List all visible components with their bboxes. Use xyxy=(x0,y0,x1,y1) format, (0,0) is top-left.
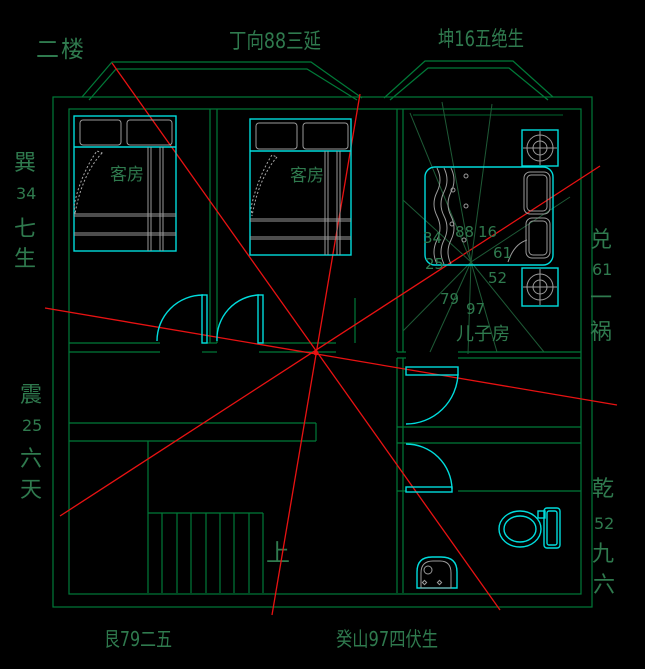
wash-basin xyxy=(417,557,457,588)
grid-number: 34 xyxy=(423,229,442,247)
compass-char: 震 xyxy=(20,383,42,408)
blanket-fold xyxy=(74,151,102,214)
grid-number: 79 xyxy=(440,290,459,308)
grid-number: 52 xyxy=(488,269,507,287)
bedside-table xyxy=(522,130,558,166)
blanket-wave xyxy=(441,168,447,264)
grid-number: 88 xyxy=(455,223,474,241)
floorplan-drawing: 上 xyxy=(0,0,645,669)
compass-char: 九 xyxy=(592,542,614,567)
toilet-tank xyxy=(547,511,557,545)
blanket-wave xyxy=(448,168,454,264)
compass-top-right: 坤16五绝生 xyxy=(438,27,524,51)
door-swing xyxy=(217,295,259,341)
grid-number: 61 xyxy=(493,244,512,262)
basin-drain xyxy=(424,566,432,574)
blanket-fold xyxy=(251,155,277,216)
grid-number: 25 xyxy=(425,255,444,273)
sight-line xyxy=(45,308,617,405)
pillow xyxy=(256,123,297,149)
pillow xyxy=(524,172,550,214)
compass-char: 巽 xyxy=(14,151,36,176)
compass-char: 祸 xyxy=(590,320,612,345)
compass-char: 天 xyxy=(20,478,42,503)
compass-bottom-center: 癸山97四伏生 xyxy=(336,627,438,651)
pillow xyxy=(527,175,547,211)
pillow xyxy=(529,221,547,255)
pillow xyxy=(127,120,172,145)
pillow xyxy=(303,123,348,149)
compass-right-upper: 兑 61 一 祸 xyxy=(590,228,612,345)
door-swing xyxy=(406,374,458,424)
compass-char: 兑 xyxy=(590,228,612,253)
room-label-guest2: 客房 xyxy=(290,166,324,186)
door-guest1 xyxy=(157,295,207,343)
stairs-up-label: 上 xyxy=(266,539,290,567)
compass-left-upper: 巽 34 七 生 xyxy=(14,151,36,272)
sight-line-hub xyxy=(314,351,319,356)
grid-number: 97 xyxy=(466,300,485,318)
grid-number: 16 xyxy=(478,223,497,241)
door-son-room xyxy=(406,367,458,424)
bedside-table xyxy=(522,268,558,306)
compass-left-lower: 震 25 六 天 xyxy=(20,383,42,503)
red-sight-lines xyxy=(45,63,617,615)
compass-char: 25 xyxy=(22,416,42,435)
pillow xyxy=(80,120,121,145)
toilet xyxy=(499,508,560,548)
door-guest2 xyxy=(217,295,263,343)
door-leaf xyxy=(258,295,263,343)
compass-top-center: 丁向88三延 xyxy=(229,29,321,53)
compass-char: 乾 xyxy=(592,477,614,502)
compass-right-lower: 乾 52 九 六 xyxy=(592,477,615,598)
door-bathroom xyxy=(406,444,452,492)
compass-char: 61 xyxy=(592,260,612,279)
compass-char: 六 xyxy=(20,447,42,472)
door-swing xyxy=(406,444,452,489)
compass-char: 一 xyxy=(590,286,612,311)
floorplan-canvas: 上 xyxy=(0,0,645,669)
room-label-son: 儿子房 xyxy=(456,324,510,345)
floor-label: 二楼 xyxy=(36,37,86,63)
compass-char: 七 xyxy=(14,217,36,242)
blanket-wave xyxy=(434,168,440,264)
walls xyxy=(53,61,592,607)
compass-char: 52 xyxy=(594,514,614,533)
compass-char: 六 xyxy=(593,573,615,598)
roof-right-outer xyxy=(384,61,553,98)
roof-left-inner xyxy=(89,69,357,100)
staircase: 上 xyxy=(148,441,290,593)
roof-right-inner xyxy=(390,68,548,100)
compass-char: 生 xyxy=(14,247,36,272)
compass-bottom-left: 艮79二五 xyxy=(104,627,172,651)
room-label-guest1: 客房 xyxy=(110,165,144,185)
compass-char: 34 xyxy=(16,184,36,203)
